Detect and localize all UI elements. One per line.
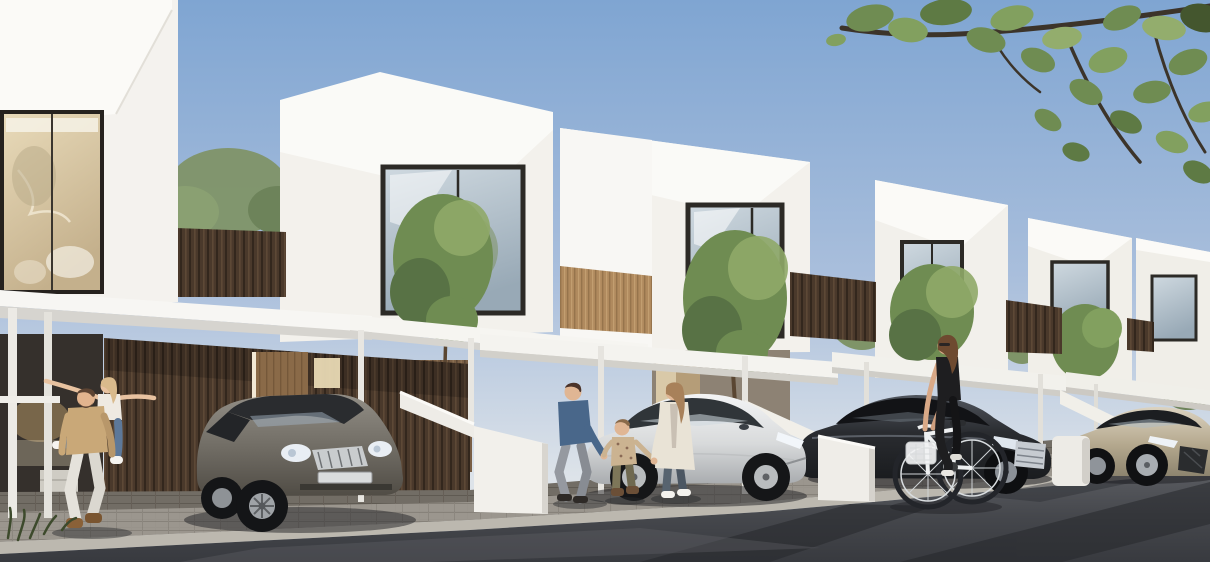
mother-right-leg: [680, 468, 683, 490]
bicycle-basket: [906, 442, 936, 464]
pb-father-boot-2: [85, 513, 102, 523]
house-4-wood-fence: [1006, 300, 1062, 354]
house-1-glass-facade: [2, 112, 102, 292]
stair-block-right: [818, 436, 875, 502]
father-shoe-2: [573, 496, 588, 503]
house-1-glass-tree-reflection: [12, 146, 56, 206]
car-skoda-intake: [300, 484, 392, 490]
daughter-right-arm: [118, 397, 154, 399]
house-6: [1136, 238, 1210, 392]
son-right-leg: [629, 464, 632, 488]
rider-back-leg: [953, 400, 957, 456]
house-3-wood-fence-right: [790, 272, 876, 342]
rider-sunglasses: [939, 343, 950, 346]
mother-sneaker-2: [677, 489, 691, 496]
son-shirt: [611, 437, 637, 466]
house-1-lit-window: [314, 358, 340, 388]
post-1a: [8, 308, 17, 518]
son-left-leg: [616, 464, 617, 490]
scene-illustration: [0, 0, 1210, 562]
rail-1: [0, 396, 60, 403]
post-1b: [44, 312, 52, 518]
rider-front-shoe: [941, 470, 954, 476]
stair-bollard-shade: [1082, 438, 1090, 484]
car-tesla-mirror: [739, 424, 749, 430]
house-5-wood-fence: [1127, 318, 1154, 352]
mother-left-leg: [666, 468, 668, 492]
house-1-interior-furniture: [46, 246, 94, 278]
daughter-right-leg: [117, 422, 119, 458]
son-boot: [611, 488, 624, 496]
screenshot-root: [0, 0, 1210, 562]
house-3-wood-band-left: [560, 266, 652, 334]
house-2-wood-fence-left: [176, 228, 286, 297]
car-skoda-plate: [318, 472, 372, 483]
pb-father-shirt: [66, 406, 108, 455]
rider-torso: [936, 357, 961, 402]
mother-sneaker: [661, 491, 675, 498]
father-shirt: [558, 400, 592, 446]
house-6-window: [1152, 276, 1196, 340]
post-2b: [468, 338, 474, 432]
father-shoe: [557, 494, 572, 501]
son-boot-2: [626, 486, 639, 494]
house-5-tree-highlight: [1082, 308, 1122, 348]
rider-back-shoe: [950, 454, 962, 460]
